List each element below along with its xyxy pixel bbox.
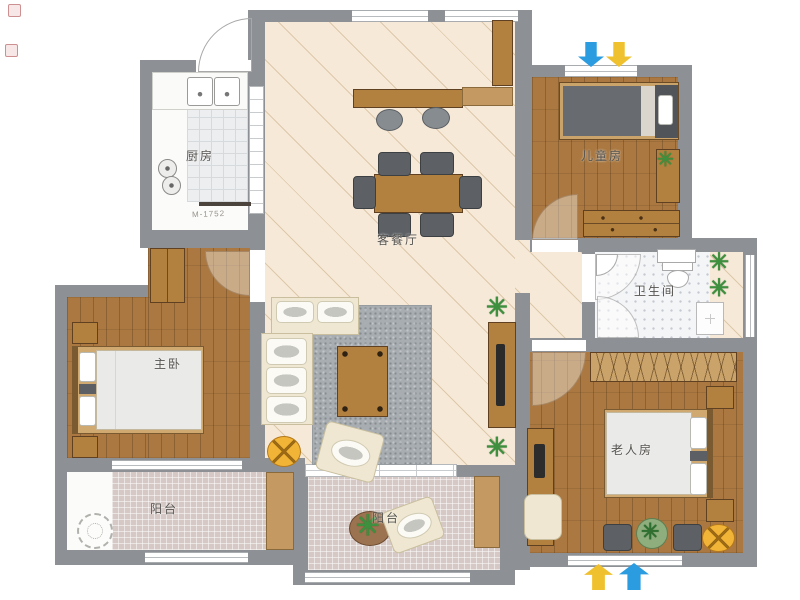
washing-machine — [77, 513, 113, 549]
bathroom-door-opening — [582, 254, 595, 302]
stove-burner — [162, 176, 181, 195]
arrow-down-yellow-icon — [606, 42, 632, 67]
dining-chair — [353, 176, 376, 209]
plant-icon: ✳ — [486, 294, 508, 320]
sofa-cushion — [317, 301, 354, 323]
window — [145, 552, 248, 563]
sofa-cushion — [266, 367, 307, 394]
nightstand — [72, 436, 98, 458]
master-bed-headboard — [72, 346, 78, 434]
bar-stool — [422, 107, 450, 129]
room-label-master: 主卧 — [144, 355, 192, 372]
arrow-up-blue-icon — [619, 563, 649, 590]
wall — [678, 65, 692, 238]
room-label-children: 儿童房 — [568, 147, 636, 164]
sofa-cushion — [266, 396, 307, 423]
kitchen-threshold — [199, 202, 251, 206]
elderly-pillow — [690, 417, 707, 449]
room-label-living-dining: 客餐厅 — [362, 231, 434, 248]
children-bed-sheet — [641, 86, 655, 136]
bar-stool — [376, 109, 403, 131]
wall — [140, 60, 152, 248]
nightstand — [706, 499, 734, 522]
coffee-table — [337, 346, 388, 417]
plant-icon: ✳ — [709, 277, 729, 301]
window — [112, 460, 242, 470]
window — [305, 572, 470, 583]
kitchen-sink — [187, 77, 213, 106]
headboard-pad — [79, 384, 96, 394]
shower-tray — [696, 302, 724, 335]
master-pillow — [79, 396, 96, 426]
kitchen-sink — [214, 77, 240, 106]
window — [745, 255, 755, 337]
tv-screen — [496, 344, 505, 406]
nightstand — [72, 322, 98, 344]
elderly-wardrobe — [590, 352, 737, 382]
elderly-door-opening — [532, 340, 586, 351]
children-pillow — [658, 95, 673, 125]
wall — [140, 230, 252, 248]
desk-monitor — [534, 444, 545, 478]
window — [352, 10, 428, 22]
balcony-cabinet — [474, 476, 500, 548]
bathroom-sink-counter — [657, 249, 696, 263]
tall-cabinet — [492, 20, 513, 86]
counter — [462, 87, 513, 106]
kitchen-sliding-door — [249, 86, 264, 214]
children-door-opening — [532, 240, 578, 252]
wall — [500, 470, 515, 585]
dining-chair — [378, 152, 411, 176]
wall — [515, 10, 532, 240]
elderly-pillow — [690, 463, 707, 495]
room-label-elderly: 老人房 — [600, 441, 664, 458]
armchair — [603, 524, 632, 551]
desk-chair — [524, 494, 562, 540]
arrow-down-blue-icon — [578, 42, 604, 67]
watermark-icon — [8, 4, 21, 17]
armchair — [673, 524, 702, 551]
wall — [55, 285, 148, 297]
master-pillow — [79, 352, 96, 382]
washing-machine-drum — [87, 523, 103, 539]
kitchen-dimension-text: M-1752 — [192, 208, 256, 221]
wall — [293, 470, 308, 585]
floorplan-canvas: M-1752 ✳ ✳ ✳ ✳ ✳ — [0, 0, 800, 600]
nightstand — [706, 386, 734, 409]
plant-icon: ✳ — [641, 521, 659, 543]
children-dresser — [583, 210, 680, 237]
plant-icon: ✳ — [486, 434, 508, 460]
sofa-cushion — [276, 301, 314, 323]
lounge-chair-cushion — [328, 435, 373, 470]
plant-icon: ✳ — [657, 150, 674, 170]
window — [565, 65, 637, 77]
headboard-pad — [690, 451, 707, 461]
elderly-bed-headboard — [707, 409, 713, 498]
children-bed-duvet — [563, 86, 641, 136]
room-label-bathroom: 卫生间 — [620, 282, 690, 299]
dining-chair — [420, 152, 454, 175]
balcony-cabinet — [266, 472, 294, 550]
room-label-balcony-center: 阳台 — [360, 509, 412, 526]
window — [568, 555, 682, 566]
watermark-icon — [5, 44, 18, 57]
hall-wardrobe — [150, 248, 185, 303]
arrow-up-yellow-icon — [584, 564, 613, 590]
round-side-table — [702, 524, 735, 552]
bar-counter — [353, 89, 463, 108]
master-door-opening — [250, 250, 265, 302]
plant-icon: ✳ — [709, 251, 729, 275]
dining-chair — [459, 176, 482, 209]
room-label-balcony-left: 阳台 — [138, 500, 190, 517]
sofa-cushion — [266, 338, 307, 365]
entry-door-arc — [198, 18, 252, 72]
dining-table — [374, 174, 463, 213]
wall — [55, 285, 67, 472]
room-label-kitchen: 厨房 — [168, 147, 232, 164]
round-side-table — [267, 436, 301, 467]
